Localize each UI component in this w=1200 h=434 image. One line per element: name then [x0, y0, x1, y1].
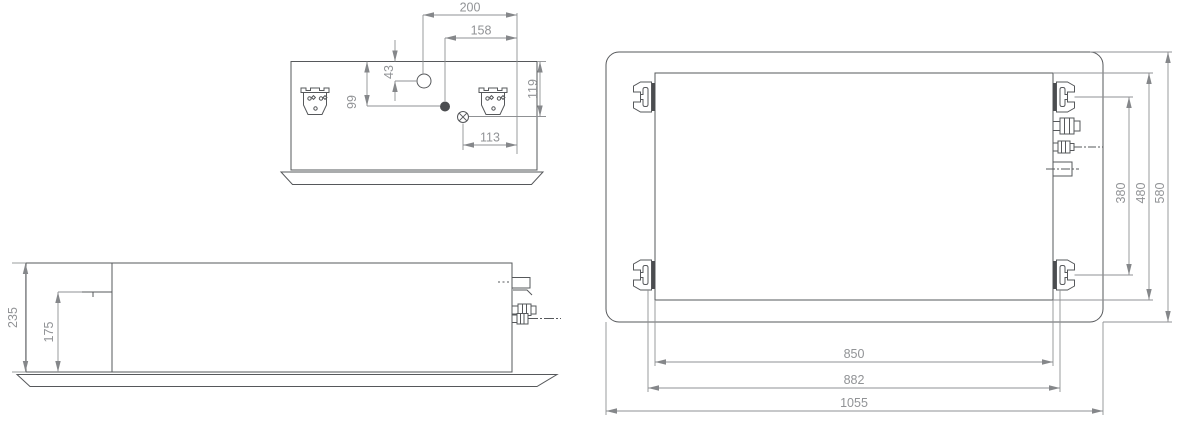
dim-580-label: 580	[1153, 183, 1167, 204]
dim-235-label: 235	[6, 307, 20, 328]
unit-body-side	[291, 62, 537, 171]
front-view: 235 175	[6, 263, 561, 387]
pipe-knob	[440, 102, 450, 112]
bracket-bar-top-left	[652, 83, 656, 111]
decoration-panel-front	[17, 375, 557, 387]
dim-850: 850	[655, 347, 1053, 362]
bracket-bar-top-right	[1053, 83, 1057, 111]
dim-480-label: 480	[1134, 183, 1148, 204]
dim-175-label: 175	[42, 322, 56, 343]
side-view: 200 158 43 99 119 113	[281, 1, 546, 185]
dim-113-label: 113	[480, 131, 500, 145]
dim-882: 882	[648, 373, 1060, 388]
dim-1055: 1055	[606, 396, 1103, 411]
dim-99-label: 99	[345, 95, 359, 109]
dim-200-label: 200	[460, 1, 481, 15]
dim-43-label: 43	[382, 65, 396, 79]
dim-380: 380	[1114, 97, 1129, 275]
decoration-panel-side	[281, 172, 543, 185]
dim-1055-label: 1055	[840, 396, 868, 410]
dim-480: 480	[1134, 73, 1149, 300]
dimension-drawing: 200 158 43 99 119 113	[0, 0, 1200, 434]
dim-158-label: 158	[471, 24, 492, 38]
dim-119-label: 119	[526, 79, 540, 99]
dim-850-label: 850	[844, 347, 865, 361]
refrigerant-pipes-front	[512, 304, 561, 324]
dim-882-label: 882	[844, 373, 865, 387]
unit-body-plan	[655, 73, 1053, 300]
technical-drawing-page: 200 158 43 99 119 113	[0, 0, 1200, 434]
unit-body-front	[26, 263, 512, 372]
plan-view: 380 480 580 850 882 1055	[606, 52, 1172, 415]
hook-line	[513, 290, 532, 295]
dim-235: 235	[6, 263, 26, 372]
screw-fitting	[458, 112, 469, 123]
drain-hole	[417, 74, 431, 88]
dim-580: 580	[1153, 52, 1168, 322]
bracket-bar-bottom-left	[652, 261, 656, 289]
dim-380-label: 380	[1114, 183, 1128, 204]
bracket-bar-bottom-right	[1053, 261, 1057, 289]
